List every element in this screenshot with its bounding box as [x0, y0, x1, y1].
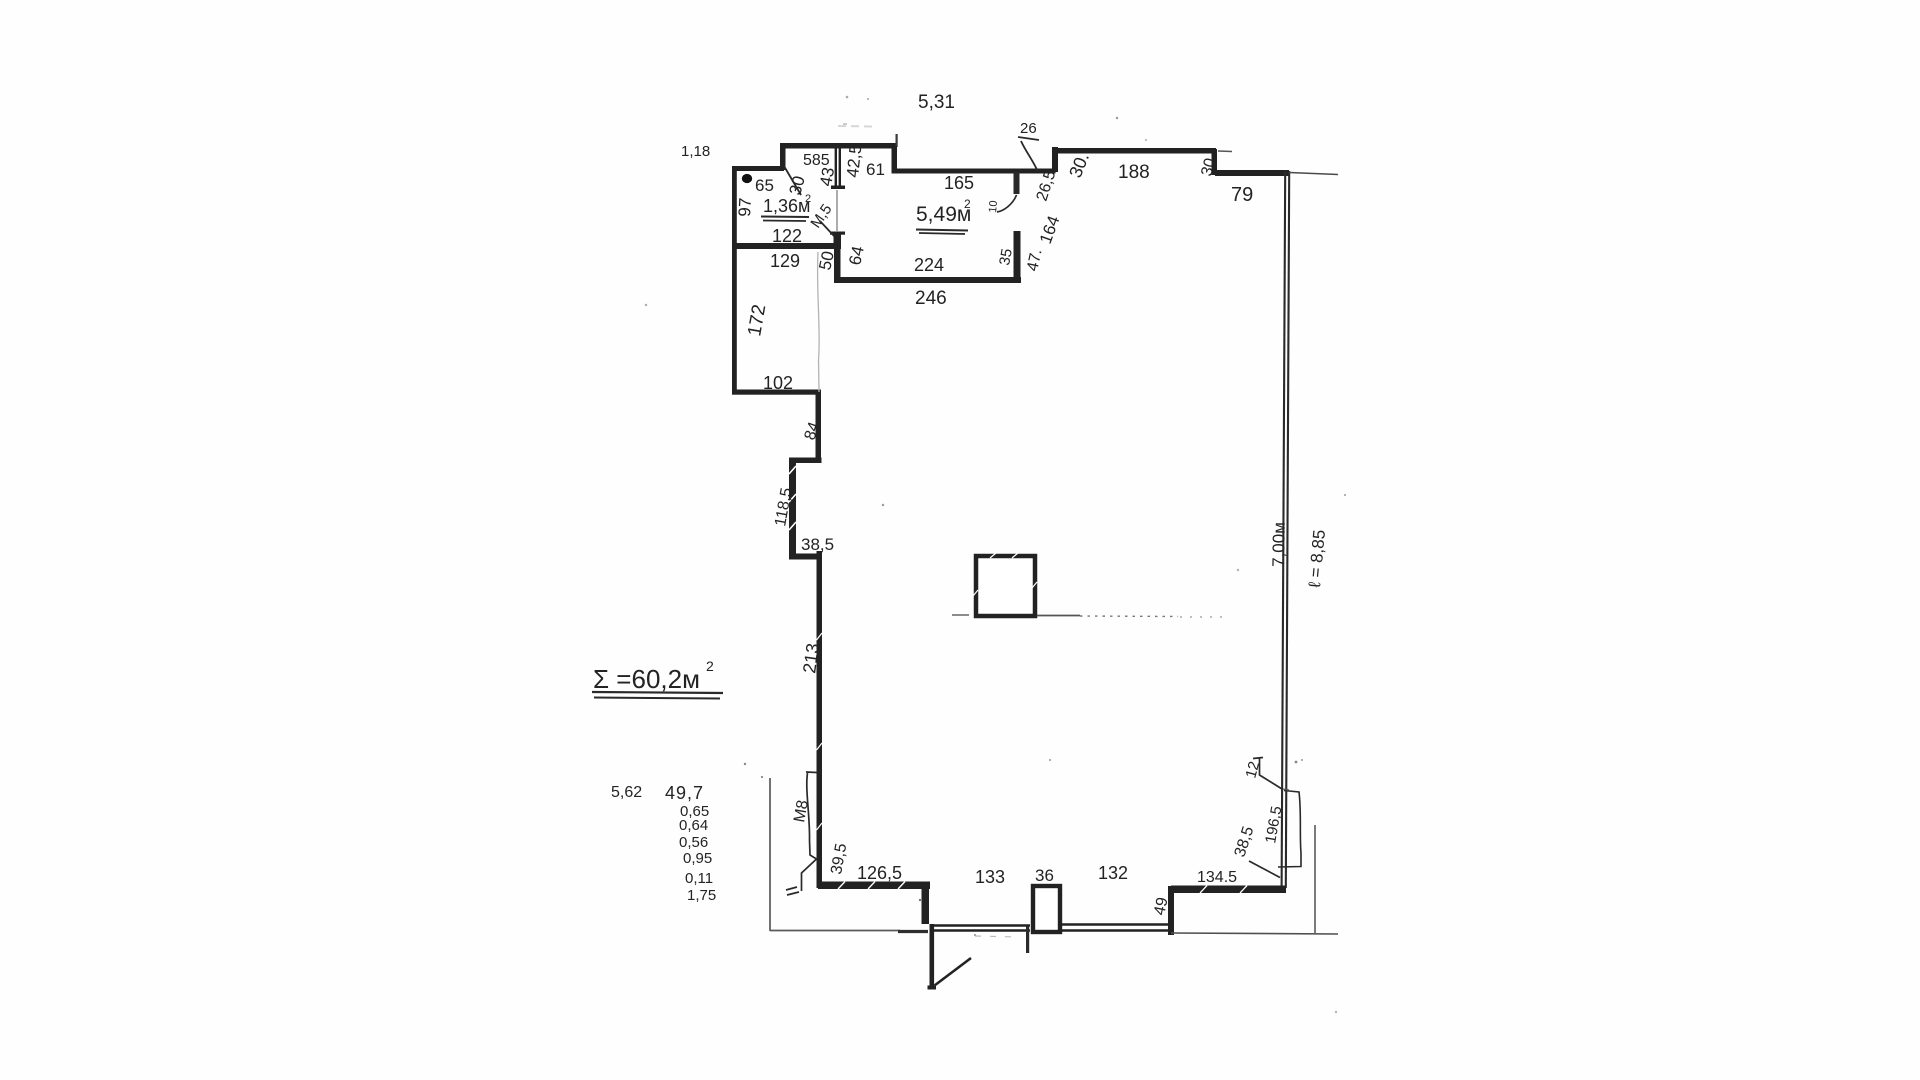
svg-text:5,31: 5,31: [918, 92, 955, 113]
svg-text:0,64: 0,64: [679, 817, 708, 834]
svg-text:35: 35: [996, 247, 1016, 266]
svg-text:585: 585: [803, 152, 830, 169]
svg-text:36: 36: [1035, 866, 1054, 885]
svg-text:1,18: 1,18: [681, 143, 710, 160]
svg-text:97: 97: [735, 197, 755, 217]
svg-text:122: 122: [772, 226, 802, 246]
svg-text:213: 213: [799, 642, 823, 675]
svg-text:65: 65: [755, 176, 774, 195]
svg-text:102: 102: [763, 373, 793, 393]
svg-text:2: 2: [964, 197, 971, 211]
svg-text:132: 132: [1098, 863, 1128, 883]
svg-text:1,36м: 1,36м: [763, 196, 810, 216]
svg-text:126,5: 126,5: [857, 863, 902, 883]
svg-text:134.5: 134.5: [1197, 869, 1237, 886]
svg-text:50: 50: [815, 249, 838, 271]
svg-text:129: 129: [770, 251, 800, 271]
svg-text:49,7: 49,7: [665, 783, 704, 803]
svg-text:2: 2: [805, 193, 811, 205]
svg-text:188: 188: [1118, 162, 1150, 183]
svg-text:43: 43: [816, 166, 838, 188]
svg-text:133: 133: [975, 867, 1005, 887]
svg-text:79: 79: [1231, 184, 1253, 206]
svg-text:5,62: 5,62: [611, 784, 642, 801]
svg-text:165: 165: [944, 173, 974, 193]
svg-text:10: 10: [987, 200, 1000, 213]
svg-text:26: 26: [1020, 120, 1037, 137]
svg-text:64: 64: [845, 244, 868, 266]
svg-text:7,00м: 7,00м: [1269, 522, 1289, 567]
svg-text:0,11: 0,11: [685, 870, 713, 887]
svg-text:0,95: 0,95: [683, 850, 712, 867]
svg-text:224: 224: [914, 255, 944, 275]
svg-text:38,5: 38,5: [801, 535, 834, 554]
svg-text:42,5: 42,5: [843, 144, 865, 179]
svg-text:0,56: 0,56: [679, 834, 708, 851]
svg-text:246: 246: [915, 288, 947, 309]
svg-text:2: 2: [706, 658, 714, 674]
svg-text:49: 49: [1151, 896, 1171, 917]
svg-text:61: 61: [866, 160, 885, 179]
svg-text:1,75: 1,75: [687, 887, 716, 904]
svg-text:Σ =60,2м: Σ =60,2м: [593, 664, 700, 694]
